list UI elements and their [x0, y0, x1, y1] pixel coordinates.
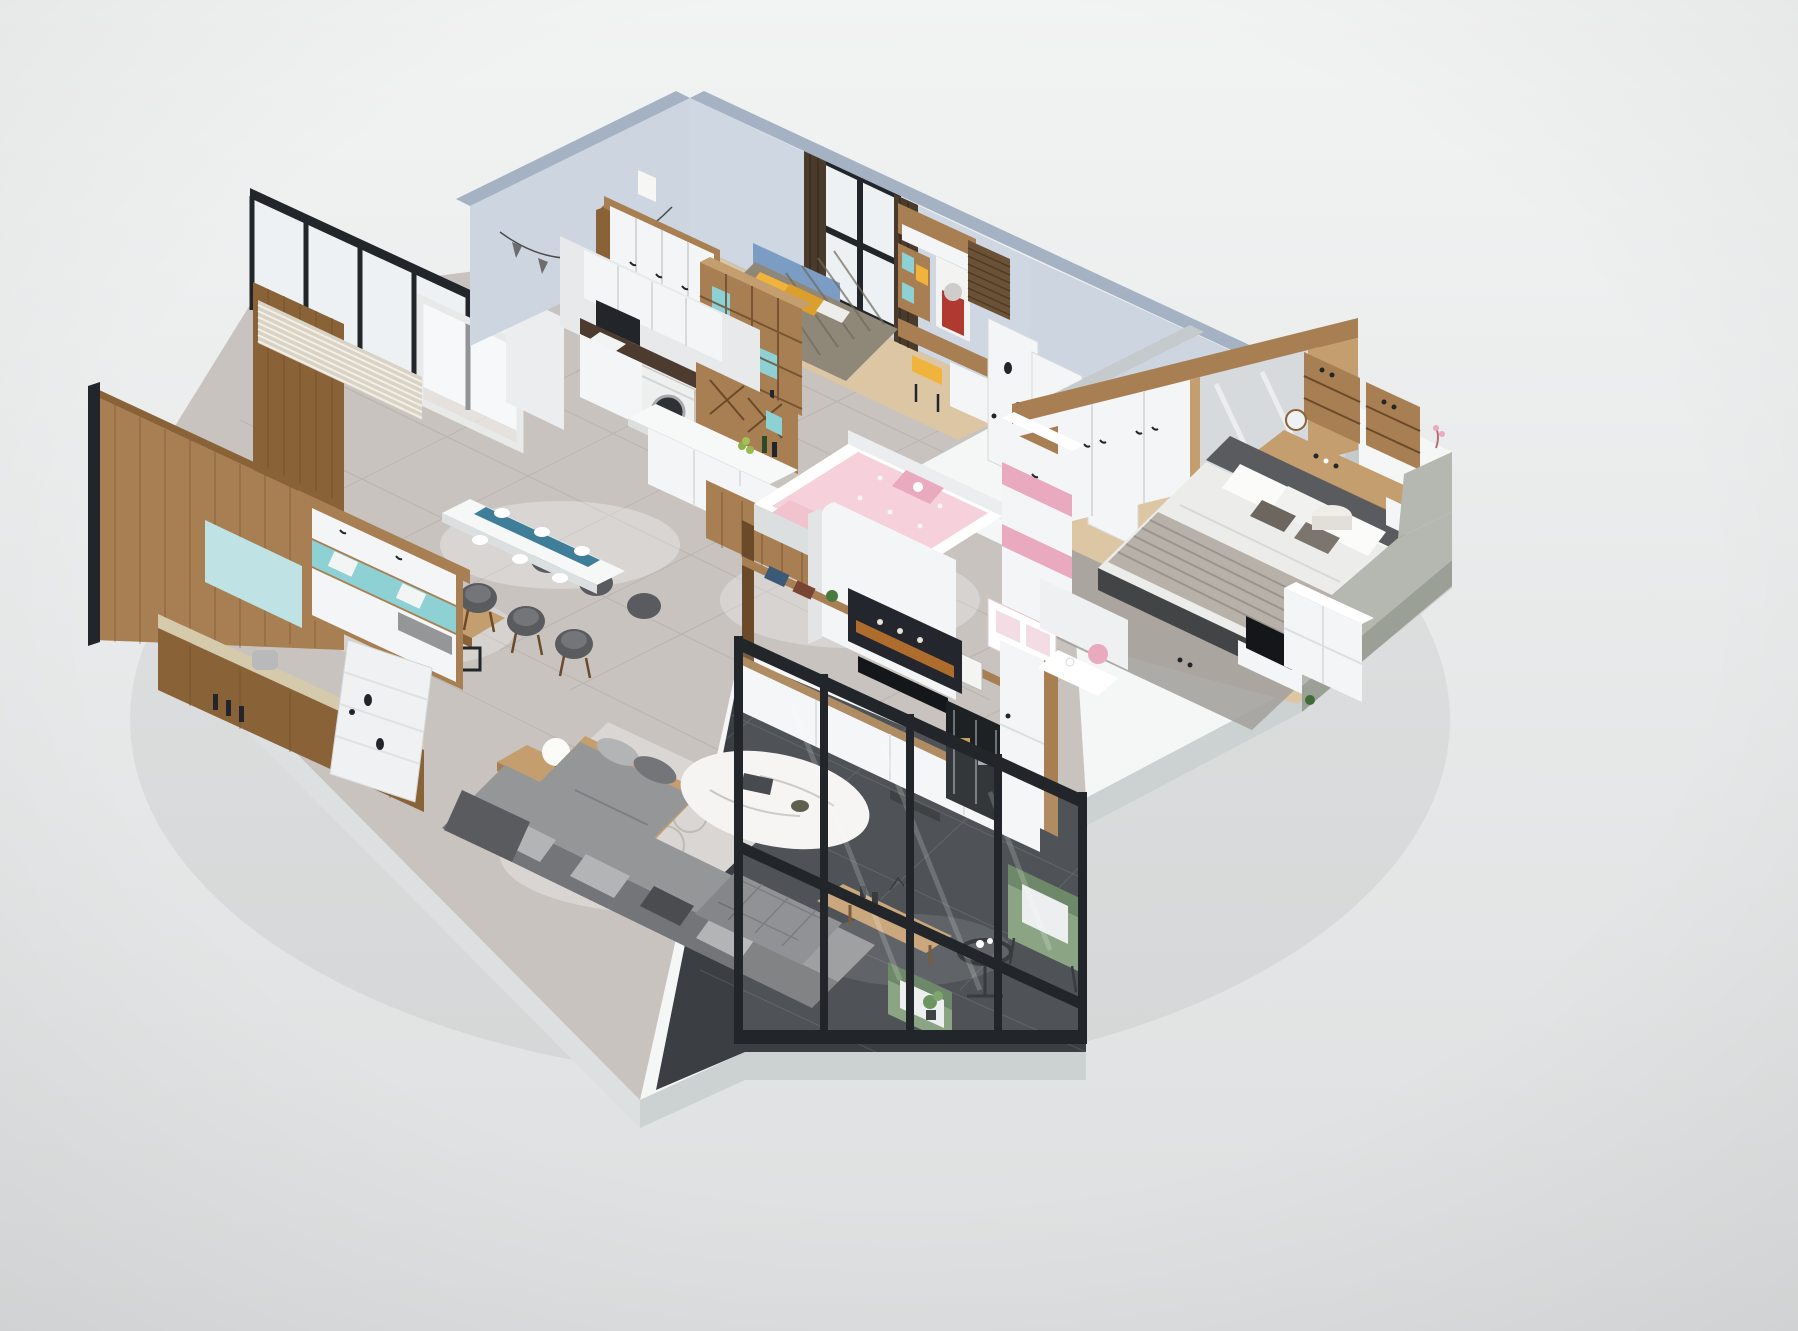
leaf-decal — [1004, 362, 1012, 374]
cosmetics — [1330, 373, 1335, 378]
cosmetics — [1382, 400, 1387, 405]
poster-figure — [877, 619, 883, 625]
open-white-door — [330, 640, 432, 802]
post — [1078, 792, 1087, 1044]
post — [994, 754, 1002, 1044]
door-handle — [992, 414, 997, 419]
kitty-face — [913, 482, 923, 492]
cosmetics — [1320, 368, 1325, 373]
pattern-dot — [938, 504, 943, 509]
bottle — [226, 700, 231, 716]
wine-bottle — [772, 442, 777, 457]
poster-rhino-head — [944, 283, 962, 301]
plate — [552, 573, 568, 583]
perfume — [1324, 459, 1329, 464]
bottle — [213, 694, 218, 710]
plant — [826, 590, 838, 602]
cosmetics — [1392, 405, 1397, 410]
wine-bottle — [762, 436, 767, 453]
post — [906, 714, 914, 1044]
partition-side — [808, 508, 822, 644]
plate — [512, 554, 528, 564]
figurine — [1188, 663, 1193, 668]
vanity-mirror — [1286, 410, 1306, 430]
pink-chair — [1088, 644, 1108, 664]
door-handle — [349, 709, 355, 715]
pattern-dot — [858, 496, 863, 501]
fruit — [742, 437, 750, 445]
dining-chair — [627, 593, 661, 619]
plate — [574, 546, 590, 556]
post — [734, 636, 743, 1044]
perfume — [1314, 454, 1319, 459]
pattern-dot — [918, 524, 923, 529]
wall-edge-trim — [88, 382, 100, 646]
pouf-side — [1312, 516, 1352, 530]
plate — [494, 508, 510, 518]
bottle — [239, 706, 244, 722]
isometric-scene — [0, 0, 1798, 1331]
flower — [1439, 431, 1445, 437]
platform-side — [745, 1052, 1086, 1080]
leaf-decal — [364, 694, 372, 706]
flower — [1433, 425, 1439, 431]
handle — [1006, 714, 1011, 719]
fruit — [746, 446, 754, 454]
poster-figure — [897, 628, 903, 634]
plate — [534, 527, 550, 537]
plant — [1305, 695, 1315, 705]
perfume — [1334, 464, 1339, 469]
plate — [472, 535, 488, 545]
pattern-dot — [888, 510, 893, 515]
floorplan-render — [0, 0, 1798, 1331]
kettle — [1066, 658, 1074, 666]
post — [820, 674, 828, 1044]
poster-figure — [917, 637, 923, 643]
kettle — [252, 650, 278, 670]
figurine — [1178, 658, 1183, 663]
pattern-dot — [878, 476, 883, 481]
leaf-decal — [376, 738, 384, 750]
